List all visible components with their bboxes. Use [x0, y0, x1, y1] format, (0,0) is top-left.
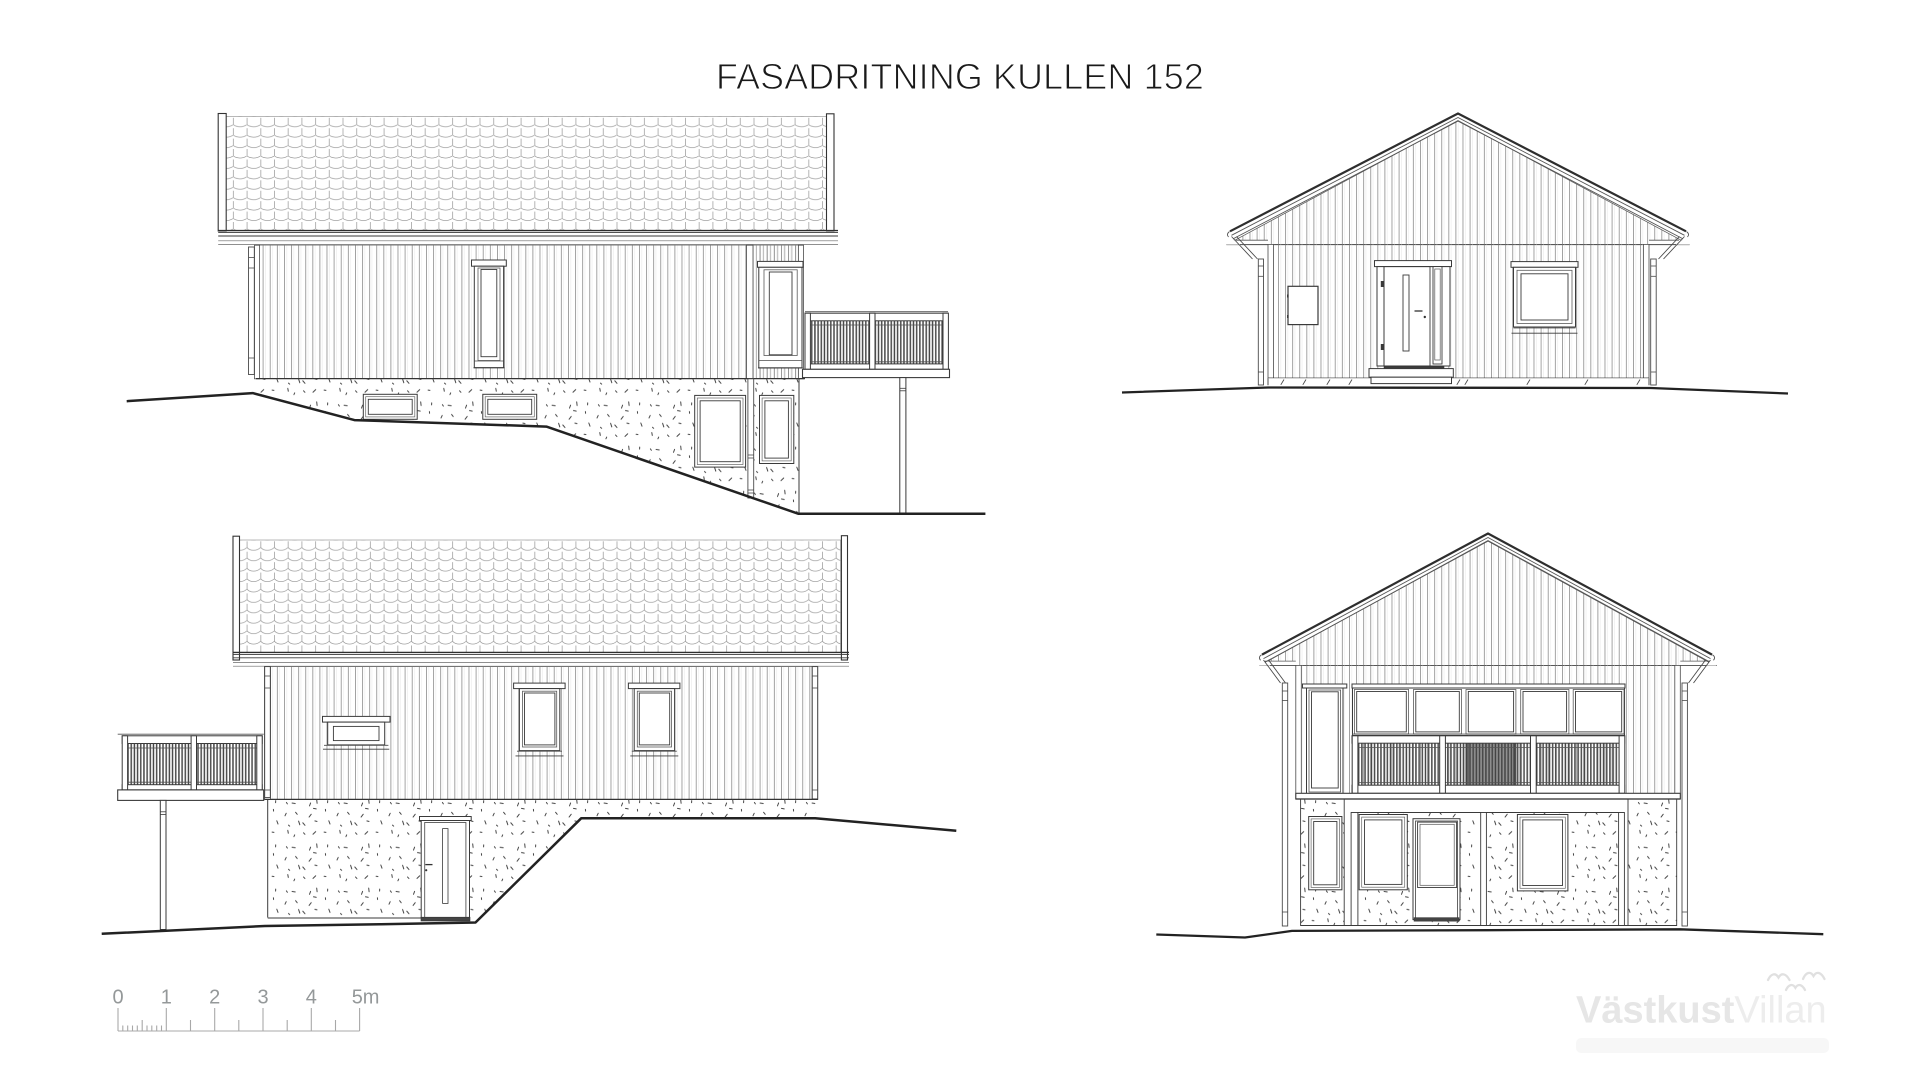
svg-text:5m: 5m — [352, 987, 380, 1009]
svg-text:0: 0 — [112, 987, 123, 1009]
svg-text:1: 1 — [161, 987, 172, 1009]
svg-text:3: 3 — [257, 987, 268, 1009]
svg-text:2: 2 — [209, 987, 220, 1009]
svg-text:4: 4 — [306, 987, 317, 1009]
svg-text:VästkustVillan: VästkustVillan — [1576, 990, 1827, 1032]
